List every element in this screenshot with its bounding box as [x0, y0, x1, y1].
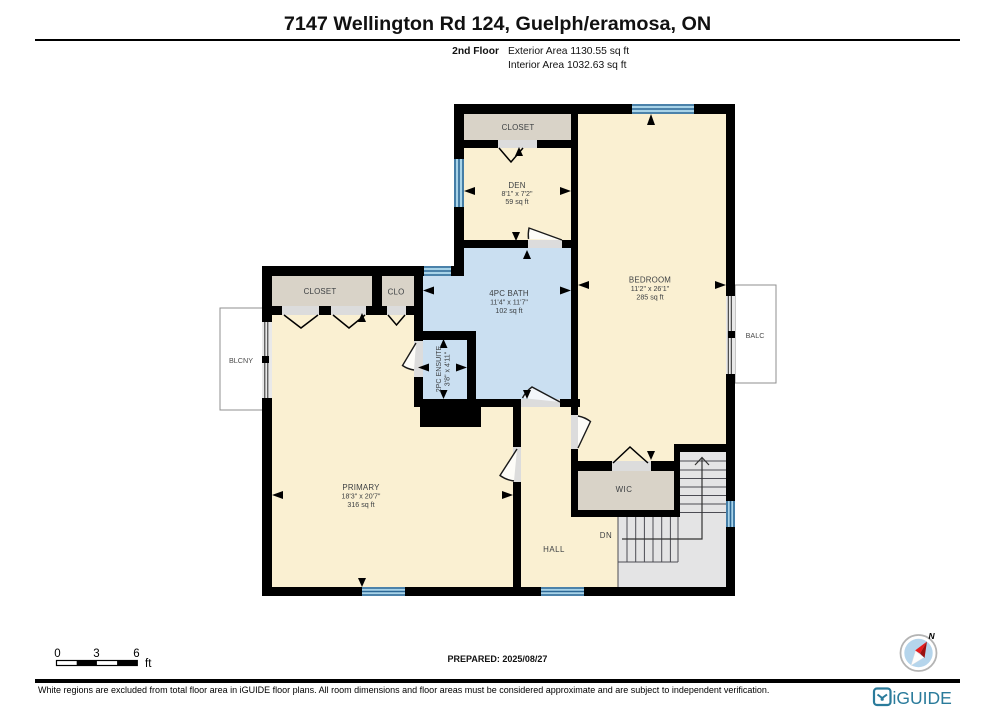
svg-text:4PC BATH: 4PC BATH — [489, 289, 529, 298]
svg-text:BLCNY: BLCNY — [229, 356, 253, 365]
svg-text:DEN: DEN — [508, 181, 525, 190]
svg-text:11'4" x 11'7": 11'4" x 11'7" — [490, 299, 528, 307]
svg-text:N: N — [929, 631, 936, 641]
svg-text:8'1" x 7'2": 8'1" x 7'2" — [501, 190, 532, 198]
svg-text:102 sq ft: 102 sq ft — [495, 307, 522, 315]
svg-text:HALL: HALL — [543, 545, 565, 554]
svg-text:DN: DN — [600, 531, 612, 540]
svg-text:18'3" x 20'7": 18'3" x 20'7" — [342, 493, 381, 501]
svg-text:BEDROOM: BEDROOM — [629, 276, 671, 285]
svg-text:2PC ENSUITE: 2PC ENSUITE — [435, 345, 443, 392]
svg-text:CLOSET: CLOSET — [304, 287, 337, 296]
svg-text:59 sq ft: 59 sq ft — [505, 198, 528, 206]
svg-text:PRIMARY: PRIMARY — [342, 483, 380, 492]
svg-text:316 sq ft: 316 sq ft — [347, 501, 374, 509]
svg-text:iGUIDE: iGUIDE — [893, 688, 952, 708]
svg-text:3'8" x 4'11": 3'8" x 4'11" — [444, 351, 452, 386]
svg-text:CLO: CLO — [388, 288, 405, 297]
svg-text:11'2" x 26'1": 11'2" x 26'1" — [631, 285, 670, 293]
svg-text:CLOSET: CLOSET — [502, 123, 535, 132]
svg-text:285 sq ft: 285 sq ft — [636, 294, 663, 302]
svg-text:WIC: WIC — [616, 485, 633, 494]
svg-text:BALC: BALC — [746, 331, 765, 340]
